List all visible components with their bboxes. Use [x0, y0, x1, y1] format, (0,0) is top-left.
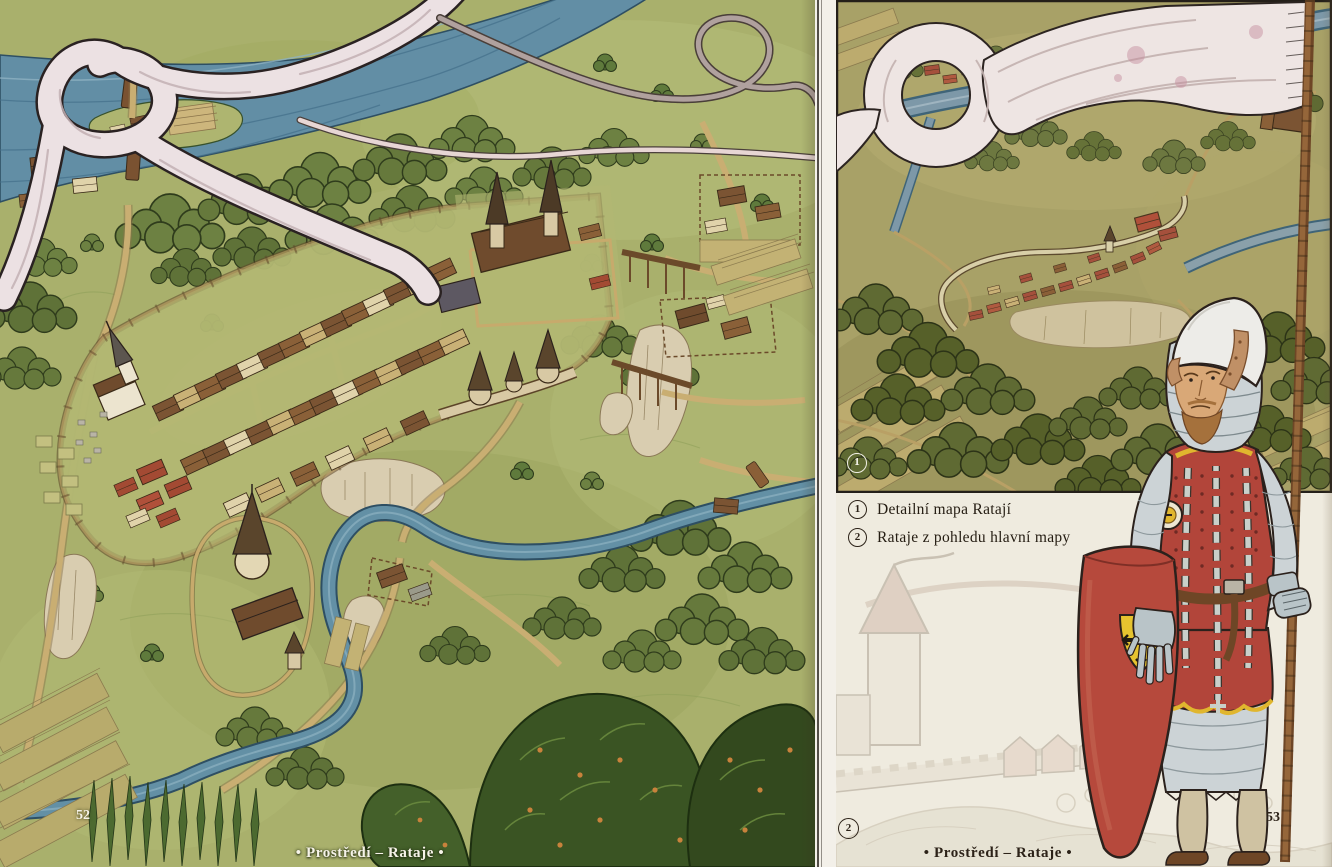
map-legend: 1 Detailní mapa Ratají 2 Rataje z pohled… [848, 500, 1070, 556]
book-spread: • Prostředí – Rataje • 52 [0, 0, 1332, 867]
footer-left: • Prostředí – Rataje • [0, 845, 740, 862]
detail-map-marker-number: 1 [854, 456, 860, 468]
main-map-view-marker-icon: 2 [838, 818, 859, 839]
right-page: 1 1 Detailní mapa Ratají 2 Rataje z pohl… [836, 0, 1332, 867]
legend-label-1: Detailní mapa Ratají [877, 501, 1011, 519]
detail-map-marker-icon: 1 [847, 453, 867, 473]
page-gutter [815, 0, 836, 867]
knight-illustration [836, 0, 1332, 867]
legend-item-2: 2 Rataje z pohledu hlavní mapy [848, 528, 1070, 547]
legend-item-1: 1 Detailní mapa Ratají [848, 500, 1070, 519]
legend-marker-2-icon: 2 [848, 528, 867, 547]
footer-right: • Prostředí – Rataje • [898, 845, 1098, 862]
main-map-view-marker-number: 2 [846, 822, 852, 834]
page-number-left: 52 [76, 808, 90, 824]
rataje-main-map-illustration [0, 0, 815, 867]
legend-marker-1-icon: 1 [848, 500, 867, 519]
legend-label-2: Rataje z pohledu hlavní mapy [877, 529, 1070, 547]
page-number-right: 53 [1266, 810, 1280, 826]
left-page: • Prostředí – Rataje • 52 [0, 0, 815, 867]
